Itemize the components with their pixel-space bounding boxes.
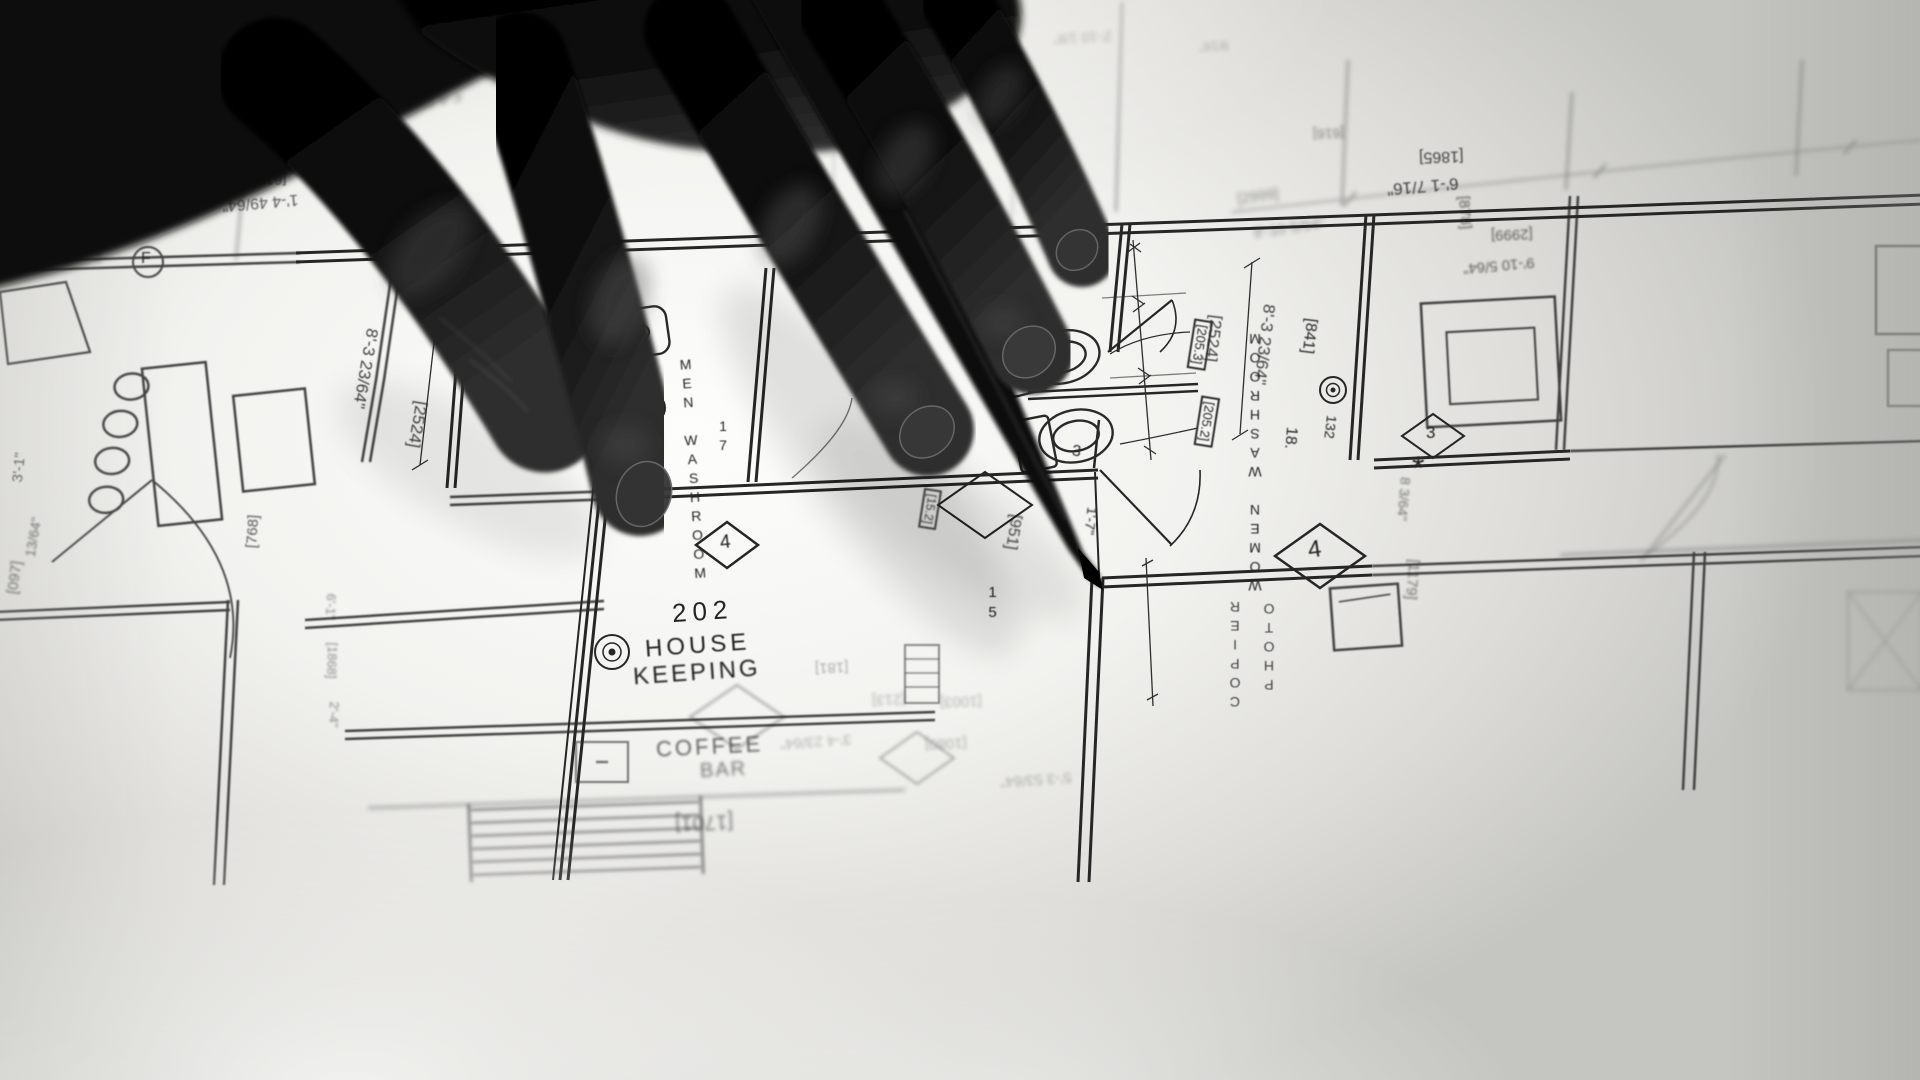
dim-label: [2999]	[1491, 226, 1533, 242]
dim-label: [1865]	[1419, 147, 1464, 165]
dim-label: [2999]	[1236, 186, 1279, 207]
photo-blueprint-scene: [916] 6'-10 1/2" [512] 1'-5 3/32" 4'-8 2…	[0, 0, 1920, 1080]
room-number: 18.	[1281, 426, 1299, 450]
fingernails	[608, 221, 1106, 534]
dim-label: [616]	[1313, 126, 1345, 141]
room-number: 17	[716, 418, 730, 456]
tag-label: 15	[985, 584, 1000, 624]
keynote-diamond	[938, 472, 1032, 538]
toilet-fixture	[1012, 403, 1117, 473]
stairs	[469, 796, 704, 882]
fingernail	[1048, 221, 1106, 279]
dim-label: [1080]	[925, 735, 967, 751]
keynote-diamond	[881, 156, 933, 192]
keynote-symbols	[510, 156, 1464, 784]
dim-label: [2524]	[1202, 314, 1225, 363]
main-walls	[296, 195, 1920, 882]
light-table-glow	[0, 0, 1920, 1080]
room-name: KEEPING	[632, 657, 761, 690]
tag-label: 132	[1322, 415, 1339, 440]
dim-label: [181]	[815, 659, 849, 675]
dim-label: 9'-10 5/64"	[1252, 216, 1325, 241]
dim-label: 13/64"	[23, 516, 44, 558]
ring-finger	[840, 10, 1032, 352]
dim-label: 8'-5 1/2"	[820, 21, 872, 39]
dim-label: 3'-1"	[10, 452, 28, 483]
tag-label: [841]	[1299, 317, 1319, 354]
keynote-diamond	[880, 732, 954, 784]
sink-fixture	[603, 305, 671, 361]
dim-label: [097]	[5, 560, 24, 595]
dim-label: [1868]	[325, 642, 339, 679]
pinky-finger	[950, 0, 1082, 252]
dim-label: [1003]	[940, 693, 982, 709]
keynote-bullseye	[595, 635, 629, 669]
tag-label: 1'-7"	[1082, 506, 1099, 535]
keynote-glyph: 4	[719, 532, 732, 552]
dim-label: 2'-10 1/8"	[1053, 29, 1113, 46]
keynote-bullseye	[1320, 377, 1346, 403]
fingernail	[608, 454, 680, 533]
dim-label: 8'-3 23/64"	[1251, 303, 1278, 386]
dim-label: 3'-4 23/64"	[780, 732, 852, 752]
dim-label: 1'-5 3/32"	[9, 137, 82, 160]
room-name: WOMEN WASHROOM	[1248, 328, 1262, 594]
pen	[745, 0, 1103, 590]
tag-label: [205.2]	[1194, 395, 1221, 447]
room-name: COFFEE	[655, 733, 763, 761]
thumb	[275, 75, 545, 415]
room-name: COPIER	[1228, 596, 1242, 710]
room-name: MEN WASHROOM	[678, 356, 708, 584]
pen-tip	[1078, 548, 1103, 590]
room-name: BAR	[700, 759, 748, 781]
tag-label: [15.2]	[918, 488, 942, 530]
keynote-glyph: 3	[1426, 424, 1435, 441]
dim-label: [618]	[253, 171, 287, 187]
hand-shadow	[313, 252, 1110, 688]
dim-label: [512]	[95, 113, 131, 130]
room-number: 202	[671, 596, 734, 626]
dim-label: 6'-1 7/16"	[1386, 175, 1459, 198]
tag-label: [951]	[1002, 513, 1023, 551]
index-finger	[520, 60, 640, 488]
dim-label: 8'-3 23/64"	[350, 327, 381, 410]
thumb-creases	[440, 318, 528, 412]
plan-labels: [916] 6'-10 1/2" [512] 1'-5 3/32" 4'-8 2…	[0, 0, 1920, 1080]
dim-label: 9/16"	[1199, 39, 1230, 54]
keynote-diamond	[510, 406, 570, 448]
keynote-glyph: F	[141, 251, 151, 267]
dim-label: 8 3/64"	[1395, 477, 1413, 522]
asterisk-mark: *	[1412, 452, 1424, 484]
asterisk-mark: *	[538, 446, 550, 478]
middle-finger	[690, 30, 928, 430]
dim-label: [878]	[1456, 195, 1473, 229]
dim-label: 5'-3 53/64"	[1000, 770, 1072, 790]
keynote-diamond	[696, 522, 758, 568]
keynote-glyph: 3	[532, 416, 541, 433]
toilet-fixture	[999, 323, 1105, 398]
fingernail	[992, 315, 1066, 388]
keynote-diamond	[1275, 524, 1365, 588]
keynote-glyph: 4	[1306, 537, 1323, 563]
room-name: HOUSE	[644, 630, 751, 661]
dim-label: [1179]	[1403, 559, 1421, 601]
forearm-silhouette	[0, 0, 648, 292]
skin-highlights	[372, 56, 1035, 465]
far-linework	[0, 2, 1920, 808]
tag-label: 3	[1071, 443, 1082, 460]
keynote-diamond	[690, 685, 784, 749]
hand-silhouette	[390, 0, 1021, 154]
dim-label: 2'-4"	[327, 701, 341, 727]
fingernail	[889, 395, 964, 469]
photo-vignette	[0, 0, 1920, 1080]
blueprint-linework	[0, 0, 1920, 1080]
dim-label: [213]	[872, 691, 906, 707]
dim-label: [768]	[244, 514, 261, 548]
dim-label: 1'-4 49/64"	[221, 191, 298, 214]
dim-label: 6'-10 1/2"	[27, 63, 108, 88]
dim-label: [619]	[773, 2, 802, 16]
dim-label: [1701]	[675, 811, 734, 834]
dim-label: 4'-8 23/64"	[391, 89, 464, 114]
mid-linework	[0, 196, 1920, 885]
dim-label: [916]	[2, 49, 36, 65]
dim-label: 9'-10 5/64"	[1462, 255, 1535, 276]
hand-and-pen	[0, 0, 1920, 1080]
fixtures	[603, 305, 1117, 473]
dim-label: 6'-1"	[324, 593, 338, 619]
dimension-lines	[412, 240, 1260, 706]
dim-label: [2524]	[405, 400, 430, 449]
tag-label: [205.3]	[1187, 318, 1214, 370]
room-name: PHOTO	[1262, 598, 1276, 693]
keynote-diamond	[1402, 414, 1464, 458]
keynote-bullseye	[635, 393, 665, 423]
